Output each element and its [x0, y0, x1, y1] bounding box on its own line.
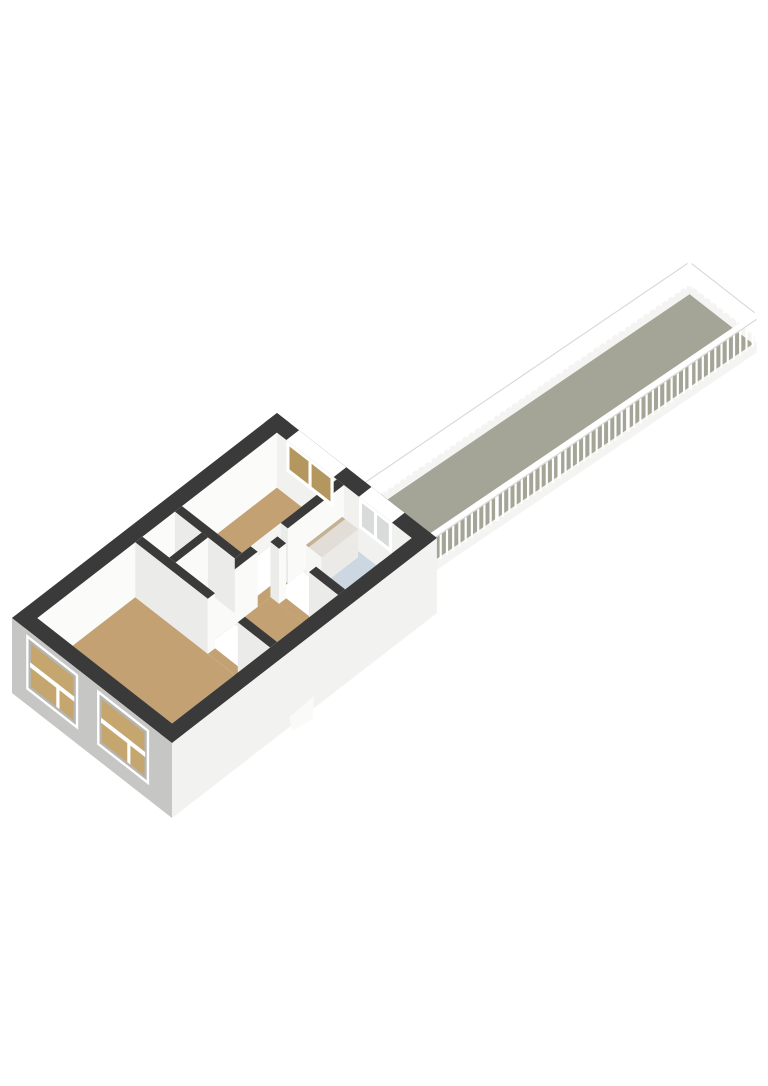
railing-baluster [604, 319, 606, 344]
railing-handrail [425, 312, 756, 544]
railing-baluster [529, 370, 531, 395]
railing-baluster [698, 269, 700, 294]
railing-baluster [677, 372, 679, 398]
railing-baluster [739, 330, 741, 356]
railing-baluster [546, 461, 548, 487]
railing-baluster [552, 457, 554, 483]
railing-baluster [416, 446, 418, 471]
railing-baluster [646, 393, 648, 419]
railing-baluster [745, 325, 747, 351]
railing-baluster [652, 389, 654, 415]
railing-baluster [614, 415, 616, 441]
wall-living-room-upper-jamb [208, 593, 215, 654]
railing-baluster [720, 342, 722, 368]
railing-baluster [541, 361, 543, 386]
railing-baluster [495, 495, 499, 521]
railing-baluster [466, 412, 468, 437]
wall-bathroom-hallway-upper-face [270, 542, 279, 604]
railing-baluster [689, 364, 693, 390]
railing-baluster [516, 378, 518, 403]
railing-baluster [385, 467, 387, 492]
railing-baluster [440, 533, 442, 559]
railing-baluster [490, 499, 492, 525]
railing-baluster [730, 293, 732, 318]
railing-baluster [708, 351, 710, 377]
railing-baluster [554, 353, 556, 378]
railing-baluster [602, 423, 604, 449]
wall-bathroom-hallway-upper-jamb [279, 543, 286, 604]
railing-baluster [446, 529, 448, 555]
railing-baluster [404, 455, 406, 480]
railing-baluster [714, 347, 716, 373]
railing-baluster [435, 433, 437, 458]
railing-baluster [479, 404, 481, 429]
railing-baluster [616, 311, 618, 336]
railing-baluster [723, 288, 725, 313]
floorplan-canvas[interactable] [0, 0, 768, 1086]
railing-baluster [647, 289, 649, 314]
railing-baluster [508, 487, 510, 513]
railing-baluster [671, 376, 673, 402]
railing-baluster [579, 336, 581, 361]
railing-baluster [491, 395, 495, 420]
railing-baluster [485, 400, 487, 425]
railing-baluster [727, 338, 729, 364]
railing-baluster [704, 274, 706, 299]
railing-baluster [685, 264, 687, 289]
railing-baluster [597, 323, 599, 348]
railing-baluster [521, 478, 523, 504]
railing-baluster [448, 425, 450, 450]
railing-baluster [522, 374, 524, 399]
railing-baluster [391, 463, 393, 488]
railing-baluster [527, 474, 529, 500]
railing-baluster [515, 482, 517, 508]
railing-baluster [558, 453, 562, 479]
railing-corner-post [688, 255, 692, 286]
railing-baluster [510, 383, 512, 408]
railing-baluster [664, 381, 666, 407]
railing-baluster [591, 327, 593, 352]
railing-baluster [660, 281, 662, 306]
railing-baluster [477, 508, 479, 534]
railing-baluster [626, 406, 630, 432]
floorplan-3d-view [0, 0, 768, 1086]
railing-baluster [398, 459, 400, 484]
railing-baluster [577, 440, 579, 466]
railing-baluster [653, 285, 655, 310]
railing-baluster [672, 272, 674, 297]
railing-baluster [629, 302, 631, 327]
railing-baluster [639, 398, 641, 424]
facade-window-1-mullion-vertical [56, 683, 59, 709]
railing-baluster [504, 387, 506, 412]
railing-baluster [572, 340, 574, 365]
railing-baluster [752, 321, 754, 347]
railing-baluster [547, 357, 549, 382]
railing-baluster [658, 385, 660, 411]
railing-baluster [733, 334, 735, 360]
railing-baluster [533, 470, 535, 496]
railing-baluster [540, 465, 542, 491]
railing-baluster [497, 391, 499, 416]
railing-baluster [458, 521, 460, 547]
railing-baluster [608, 419, 610, 445]
railing-baluster [621, 410, 623, 436]
railing-baluster [610, 315, 612, 340]
railing-baluster [717, 283, 719, 308]
railing-baluster [736, 298, 738, 323]
railing-baluster [666, 277, 668, 302]
railing-baluster [696, 359, 698, 385]
railing-baluster [711, 278, 713, 303]
railing-baluster [564, 448, 566, 474]
railing-baluster [702, 355, 704, 381]
railing-baluster [423, 442, 425, 467]
railing-baluster [483, 504, 485, 530]
railing-baluster [502, 491, 504, 517]
railing-baluster [471, 512, 473, 538]
railing-baluster [379, 472, 381, 497]
railing-baluster [678, 268, 680, 293]
railing-baluster [566, 344, 568, 369]
railing-baluster [622, 306, 626, 331]
railing-baluster [452, 525, 454, 551]
railing-baluster [635, 298, 637, 323]
railing-baluster [633, 402, 635, 428]
railing-baluster [535, 366, 537, 391]
railing-baluster [596, 427, 598, 453]
railing-baluster [692, 264, 694, 289]
railing-baluster [559, 349, 563, 374]
railing-baluster [583, 436, 585, 462]
railing-baluster [641, 294, 643, 319]
railing-baluster [410, 450, 412, 475]
railing-baluster [589, 431, 591, 457]
railing-baluster [571, 444, 573, 470]
facade-window-2-mullion-vertical [127, 738, 130, 765]
railing-baluster [441, 429, 443, 454]
railing-baluster [465, 516, 467, 542]
railing-baluster [585, 332, 587, 357]
railing-baluster [473, 408, 475, 433]
railing-baluster [428, 438, 432, 463]
railing-baluster [683, 368, 685, 394]
railing-baluster [460, 417, 462, 442]
railing-baluster [454, 421, 456, 446]
